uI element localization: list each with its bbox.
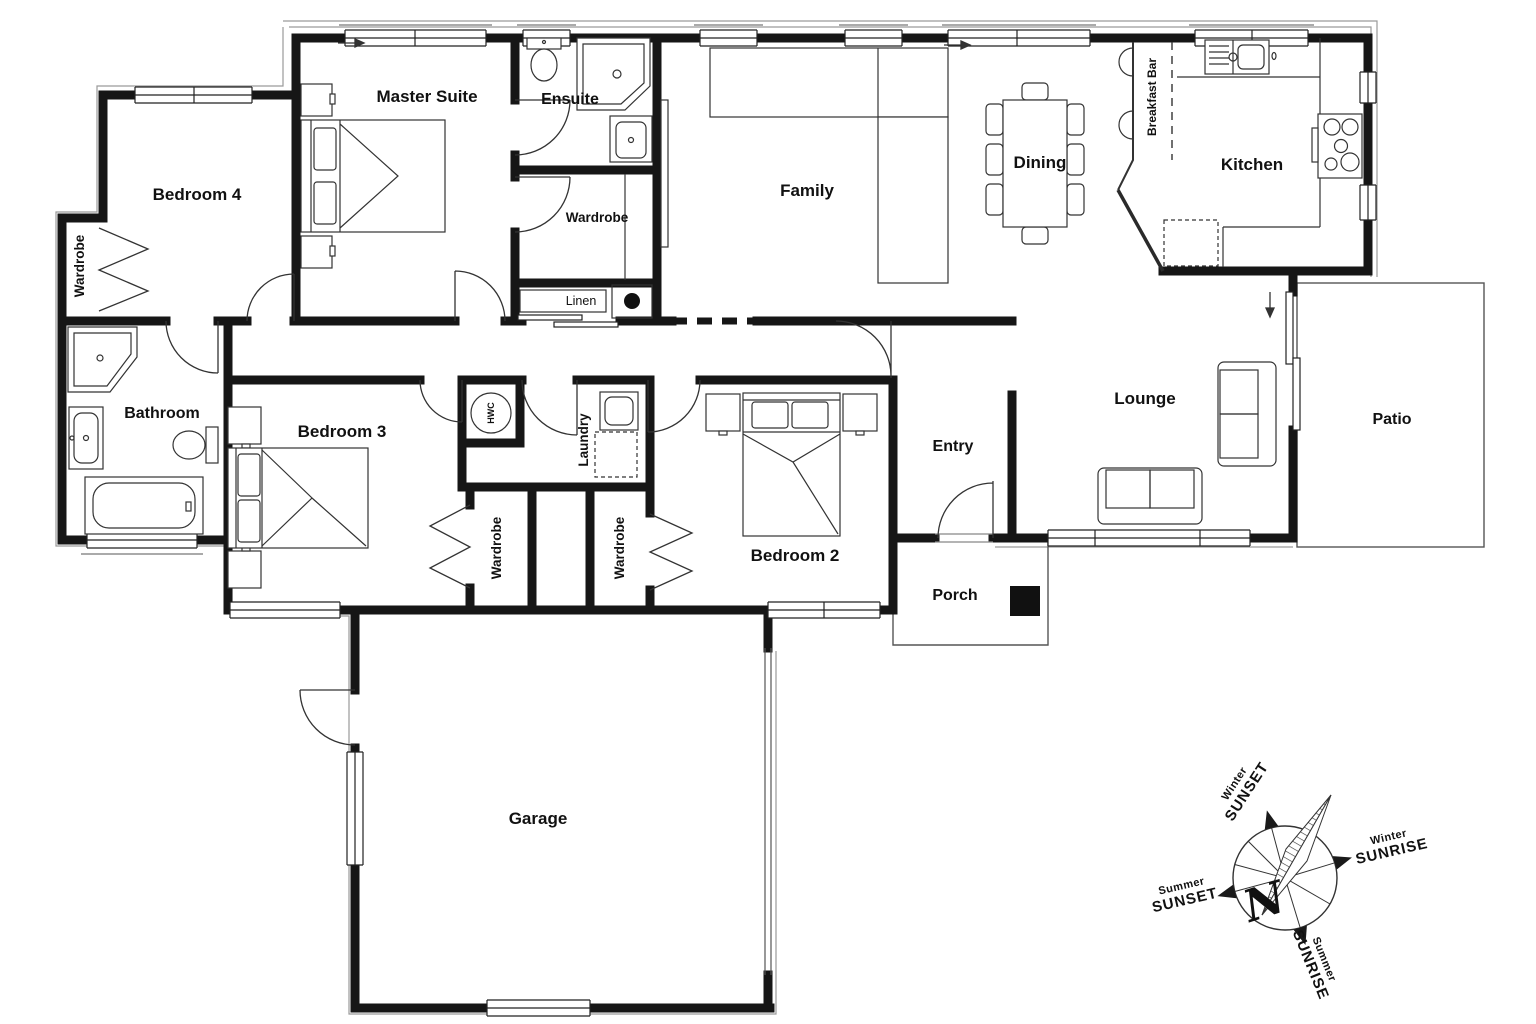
room-label-wardrobe-bed2: Wardrobe: [612, 516, 627, 579]
kitchen-cooktop: [1312, 114, 1362, 178]
ensuite-vanity: [610, 116, 652, 162]
room-label-porch: Porch: [932, 587, 977, 604]
bedroom2-bed: [706, 393, 877, 536]
room-label-family: Family: [780, 181, 834, 200]
room-label-bedroom2: Bedroom 2: [751, 546, 840, 565]
bathroom-shower: [68, 327, 137, 392]
window-family-top-1: [694, 25, 763, 46]
room-label-ensuite: Ensuite: [541, 91, 599, 108]
lounge-sofa-2: [1218, 362, 1276, 466]
window-garage-bottom: [487, 1000, 590, 1016]
floor-plan-svg: Bedroom 4 Master Suite Ensuite Wardrobe …: [0, 0, 1536, 1024]
sliding-door-patio: [1286, 292, 1300, 430]
kitchen-angled-wall: [1118, 190, 1163, 271]
floor-plan-page: Bedroom 4 Master Suite Ensuite Wardrobe …: [0, 0, 1536, 1024]
room-label-wardrobe-bed3: Wardrobe: [489, 516, 504, 579]
room-label-wardrobe-master: Wardrobe: [566, 210, 629, 225]
room-label-bathroom: Bathroom: [124, 405, 200, 422]
master-bed: [301, 84, 445, 268]
room-label-wardrobe-bed4: Wardrobe: [72, 234, 87, 297]
room-labels: Bedroom 4 Master Suite Ensuite Wardrobe …: [72, 58, 1412, 828]
bathroom-bath: [85, 477, 203, 534]
bathroom-vanity: [69, 407, 103, 469]
window-bathroom-bottom: [81, 532, 203, 554]
bifold-wardrobe-bed2: [650, 514, 692, 590]
window-lounge-bottom: [1048, 530, 1250, 546]
furniture: [68, 38, 1362, 588]
window-bedroom2-bottom: [768, 602, 880, 618]
window-kitchen-right-2: [1360, 185, 1376, 220]
garage-door: [765, 648, 771, 975]
hwc-label: HWC: [486, 402, 496, 424]
bifold-wardrobe-bed4: [99, 228, 148, 311]
room-label-linen: Linen: [566, 294, 597, 308]
window-family-top-2: [839, 25, 908, 46]
room-label-garage: Garage: [509, 809, 568, 828]
sliding-door-linen: [518, 315, 618, 327]
room-label-patio: Patio: [1372, 411, 1411, 428]
family-panel: [661, 100, 668, 247]
room-label-laundry: Laundry: [576, 413, 591, 467]
room-label-dining: Dining: [1014, 153, 1067, 172]
window-kitchen-right-1: [1360, 72, 1376, 103]
window-bedroom4-top: [135, 87, 252, 103]
room-label-lounge: Lounge: [1114, 389, 1175, 408]
room-label-breakfast-bar: Breakfast Bar: [1145, 58, 1159, 136]
family-sofa: [710, 48, 948, 283]
bifold-wardrobe-bed3: [430, 505, 470, 588]
room-label-bedroom4: Bedroom 4: [153, 185, 242, 204]
ensuite-toilet: [527, 38, 561, 81]
window-bedroom3-bottom: [230, 602, 340, 618]
lounge-sofa-1: [1098, 468, 1202, 524]
porch-pillar: [1010, 586, 1040, 616]
front-door-threshold: [935, 534, 993, 542]
laundry-tub: [595, 392, 638, 477]
window-garage-left: [347, 752, 363, 865]
bathroom-toilet: [173, 427, 218, 463]
room-label-entry: Entry: [933, 438, 974, 455]
kitchen-sink: [1205, 40, 1276, 74]
compass-rose: N Winter SUNSET Winter SUNRISE Summer SU…: [1148, 752, 1430, 1002]
room-label-bedroom3: Bedroom 3: [298, 422, 387, 441]
room-label-kitchen: Kitchen: [1221, 155, 1283, 174]
room-label-master: Master Suite: [376, 87, 477, 106]
